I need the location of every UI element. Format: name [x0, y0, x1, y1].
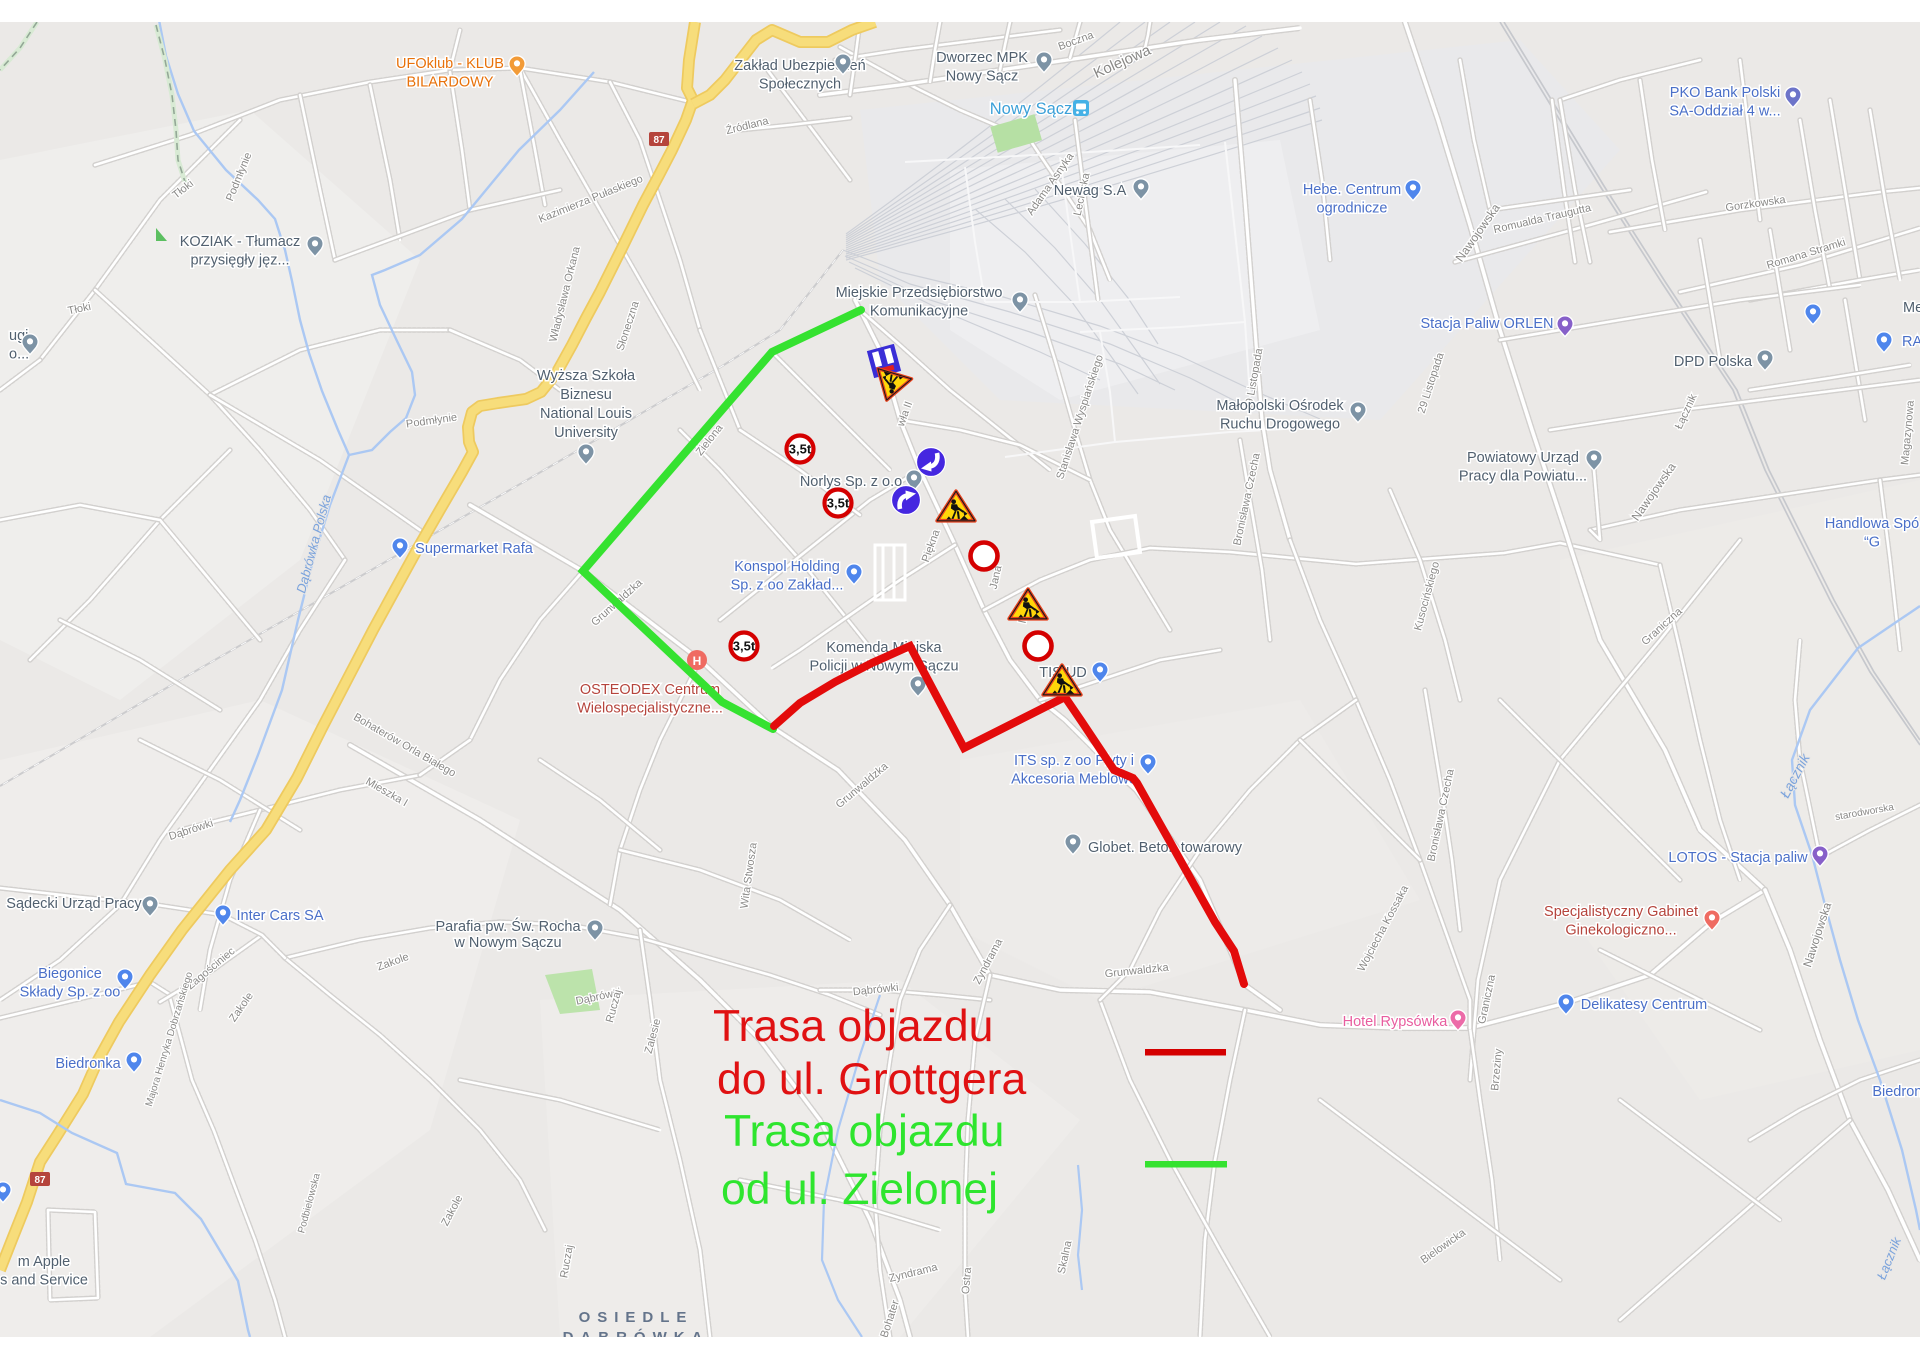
svg-text:3,5t: 3,5t — [733, 639, 756, 654]
svg-text:“G: “G — [1864, 535, 1880, 551]
svg-text:Komunikacyjne: Komunikacyjne — [870, 304, 968, 320]
svg-text:Biedronka: Biedronka — [1872, 1084, 1920, 1100]
svg-text:Hebe. Centrum: Hebe. Centrum — [1303, 182, 1401, 198]
svg-text:Merk: Merk — [1903, 300, 1920, 316]
svg-text:H: H — [693, 654, 702, 668]
svg-text:OSIEDLE: OSIEDLE — [579, 1309, 694, 1326]
svg-text:SA-Oddział 4 w...: SA-Oddział 4 w... — [1669, 104, 1780, 120]
svg-text:Sądecki Urząd Pracy: Sądecki Urząd Pracy — [6, 896, 142, 912]
svg-text:Powiatowy Urząd: Powiatowy Urząd — [1467, 450, 1579, 466]
svg-text:ogrodnicze: ogrodnicze — [1317, 201, 1388, 217]
svg-text:3,5t: 3,5t — [827, 496, 850, 511]
svg-text:Inter Cars SA: Inter Cars SA — [236, 908, 323, 924]
svg-text:Nowy Sącz: Nowy Sącz — [990, 100, 1073, 118]
svg-text:UFOklub - KLUB: UFOklub - KLUB — [396, 56, 504, 72]
svg-text:s and Service: s and Service — [0, 1273, 88, 1289]
svg-text:Wielospecjalistyczne...: Wielospecjalistyczne... — [577, 701, 723, 717]
svg-text:Stacja Paliw ORLEN: Stacja Paliw ORLEN — [1421, 316, 1554, 332]
svg-text:Supermarket Rafa: Supermarket Rafa — [415, 541, 534, 557]
svg-text:do ul. Grottgera: do ul. Grottgera — [717, 1055, 1026, 1104]
svg-text:Społecznych: Społecznych — [759, 77, 841, 93]
svg-text:3,5t: 3,5t — [789, 442, 812, 457]
svg-text:RA: RA — [1902, 334, 1920, 350]
svg-text:Biznesu: Biznesu — [560, 387, 612, 403]
svg-text:Ginekologiczno...: Ginekologiczno... — [1565, 923, 1676, 939]
svg-text:Biedronka: Biedronka — [55, 1056, 121, 1072]
svg-text:Hotel Rypsówka: Hotel Rypsówka — [1343, 1014, 1449, 1030]
svg-text:Specjalistyczny Gabinet: Specjalistyczny Gabinet — [1544, 904, 1698, 920]
svg-text:m Apple: m Apple — [18, 1254, 70, 1270]
svg-text:Handlowa Spó: Handlowa Spó — [1825, 516, 1919, 532]
svg-text:Składy Sp. z oo: Składy Sp. z oo — [20, 985, 121, 1001]
svg-text:Ostra: Ostra — [960, 1266, 974, 1295]
svg-text:Newag S.A: Newag S.A — [1054, 183, 1127, 199]
svg-text:Konspol Holding: Konspol Holding — [734, 559, 840, 575]
svg-text:Trasa objazdu: Trasa objazdu — [713, 1002, 993, 1051]
svg-text:National Louis: National Louis — [540, 406, 632, 422]
svg-text:87: 87 — [34, 1175, 46, 1186]
svg-text:DPD Polska: DPD Polska — [1674, 354, 1753, 370]
svg-text:przysięgły jęz...: przysięgły jęz... — [190, 253, 289, 269]
svg-text:Małopolski Ośrodek: Małopolski Ośrodek — [1216, 398, 1344, 414]
svg-text:87: 87 — [653, 135, 665, 146]
svg-text:Sp. z oo Zakład...: Sp. z oo Zakład... — [731, 578, 844, 594]
svg-text:LOTOS - Stacja paliw: LOTOS - Stacja paliw — [1668, 850, 1808, 866]
svg-text:Globet. Beton towarowy: Globet. Beton towarowy — [1088, 840, 1243, 856]
svg-text:Trasa objazdu: Trasa objazdu — [724, 1107, 1004, 1156]
svg-text:Delikatesy Centrum: Delikatesy Centrum — [1581, 997, 1708, 1013]
svg-text:Ruchu Drogowego: Ruchu Drogowego — [1220, 417, 1340, 433]
svg-text:Dworzec MPK: Dworzec MPK — [936, 50, 1028, 66]
svg-text:Wyższa Szkoła: Wyższa Szkoła — [537, 368, 636, 384]
svg-text:w Nowym Sączu: w Nowym Sączu — [453, 935, 561, 951]
svg-text:Parafia pw. Św. Rocha: Parafia pw. Św. Rocha — [435, 917, 581, 935]
svg-text:Biegonice: Biegonice — [38, 966, 102, 982]
svg-text:Norlys Sp. z o.o: Norlys Sp. z o.o — [800, 474, 902, 490]
svg-text:Nowy Sącz: Nowy Sącz — [946, 69, 1019, 85]
svg-text:KOZIAK - Tłumacz: KOZIAK - Tłumacz — [180, 234, 301, 250]
svg-text:University: University — [554, 425, 618, 441]
svg-text:od ul. Zielonej: od ul. Zielonej — [721, 1165, 998, 1214]
svg-text:Pracy dla Powiatu...: Pracy dla Powiatu... — [1459, 469, 1587, 485]
svg-text:BILARDOWY: BILARDOWY — [406, 75, 493, 91]
svg-text:Miejskie Przedsiębiorstwo: Miejskie Przedsiębiorstwo — [836, 285, 1003, 301]
svg-text:PKO Bank Polski: PKO Bank Polski — [1670, 85, 1780, 101]
